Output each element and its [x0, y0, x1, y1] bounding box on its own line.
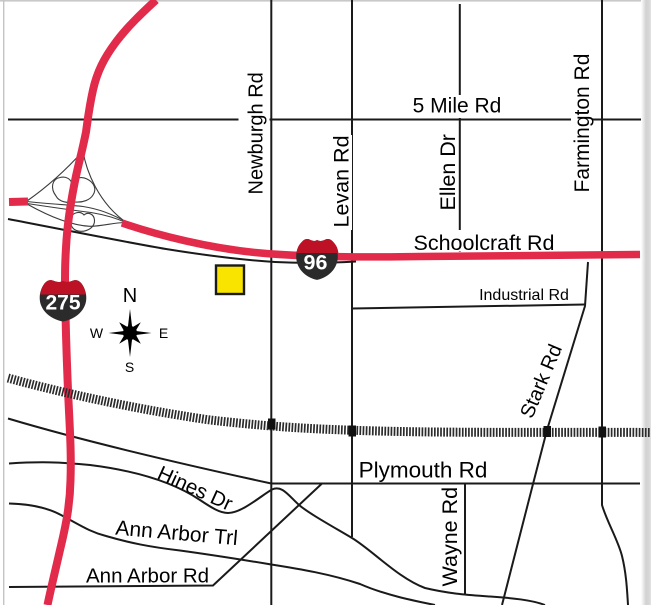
svg-text:W: W: [90, 325, 104, 341]
svg-text:Industrial Rd: Industrial Rd: [479, 287, 569, 304]
svg-text:Ellen Dr: Ellen Dr: [436, 134, 460, 210]
svg-text:E: E: [159, 325, 168, 341]
svg-text:Newburgh Rd: Newburgh Rd: [246, 72, 268, 194]
svg-text:N: N: [123, 285, 137, 307]
svg-text:Plymouth Rd: Plymouth Rd: [359, 458, 488, 483]
svg-text:Schoolcraft Rd: Schoolcraft Rd: [413, 231, 554, 255]
svg-text:Levan Rd: Levan Rd: [330, 135, 354, 227]
svg-text:5 Mile Rd: 5 Mile Rd: [413, 95, 502, 118]
svg-text:S: S: [125, 359, 134, 375]
svg-text:96: 96: [304, 251, 328, 275]
svg-text:Farmington Rd: Farmington Rd: [571, 54, 594, 193]
svg-text:Wayne Rd: Wayne Rd: [438, 487, 462, 587]
svg-text:275: 275: [45, 292, 80, 315]
svg-text:Ann Arbor Rd: Ann Arbor Rd: [86, 565, 209, 588]
